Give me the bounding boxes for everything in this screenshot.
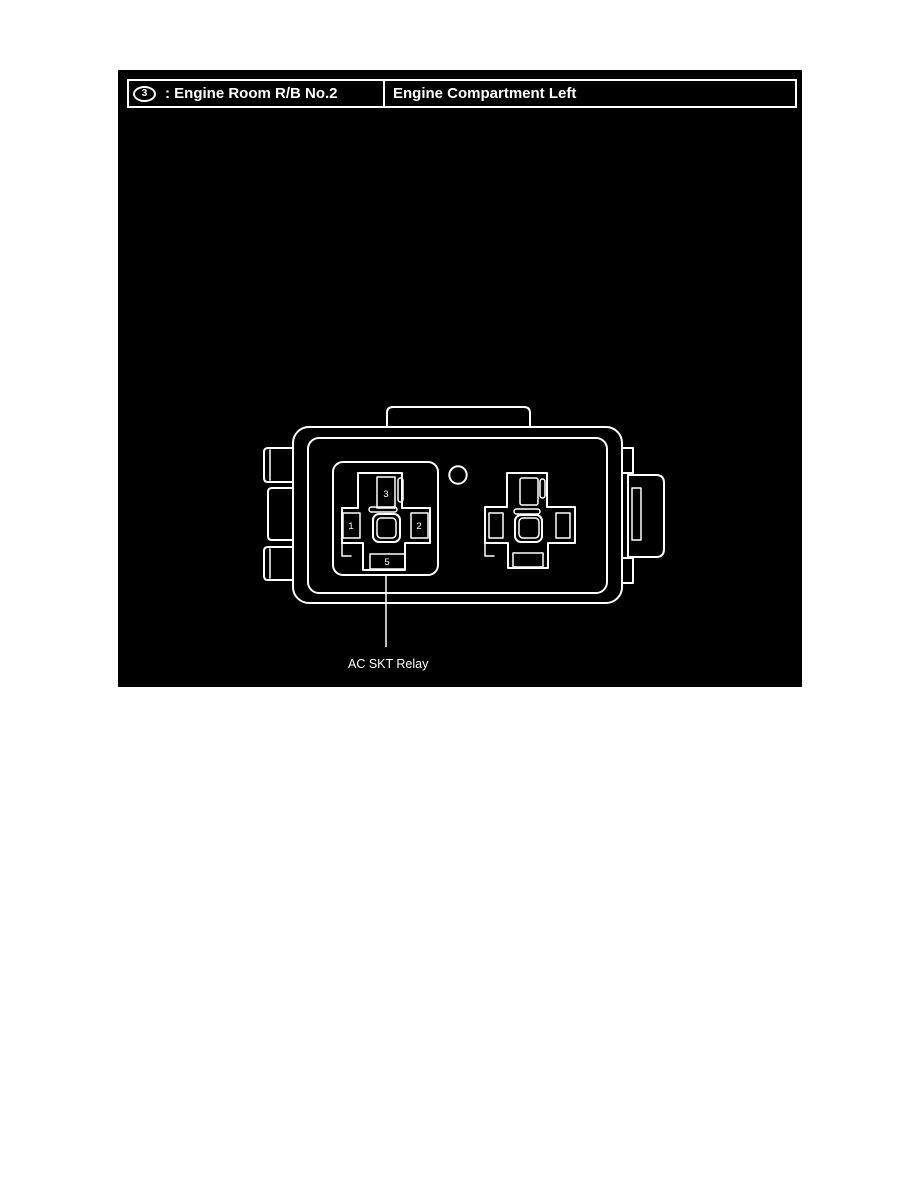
bottom-cavity: [513, 553, 543, 567]
relay-box-diagram: 3 1 2 5 AC SKT Relay: [118, 70, 802, 687]
relay-label: AC SKT Relay: [348, 657, 429, 671]
top-cavity: [520, 478, 538, 505]
terminal-number-5: 5: [384, 557, 389, 568]
left-tab-middle: [268, 488, 293, 540]
right-step-bottom: [622, 558, 633, 583]
pin3-slot: [398, 478, 403, 502]
terminal-number-1: 1: [348, 521, 353, 532]
terminal-number-3: 3: [383, 489, 388, 500]
right-step-top: [622, 448, 633, 473]
left-tab-top: [264, 448, 293, 482]
center-bar: [514, 509, 540, 514]
top-tab: [387, 407, 530, 427]
center-bar: [369, 507, 397, 512]
relay-callout: AC SKT Relay: [348, 575, 429, 671]
socket-hook-detail: [485, 543, 494, 556]
diagram-panel: 3 : Engine Room R/B No.2 Engine Compartm…: [118, 70, 802, 687]
center-cavity-inner: [519, 518, 539, 538]
relay-box-outline: [264, 407, 664, 603]
page: 3 : Engine Room R/B No.2 Engine Compartm…: [0, 0, 918, 1188]
socket-hook-detail: [342, 543, 351, 556]
center-cavity-inner: [377, 518, 396, 538]
right-cavity: [556, 513, 570, 538]
left-cavity: [489, 513, 503, 538]
right-tab-detail: [632, 488, 641, 540]
top-slot: [540, 479, 545, 498]
mounting-hole-icon: [449, 466, 466, 483]
right-relay-socket: [485, 473, 575, 568]
left-tab-bottom: [264, 547, 293, 580]
terminal-number-2: 2: [416, 521, 421, 532]
